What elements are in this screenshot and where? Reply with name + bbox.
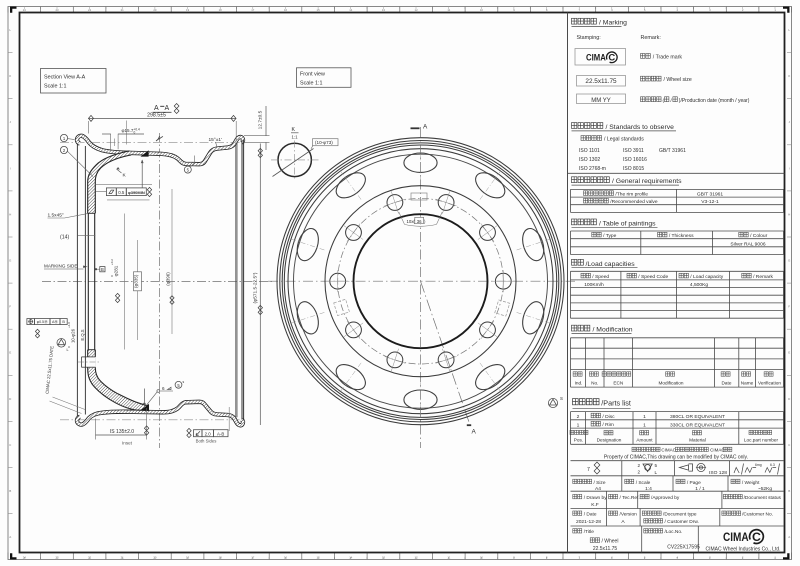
svg-text:ISO 128: ISO 128 (709, 470, 727, 476)
svg-text:0: 0 (134, 131, 136, 135)
svg-text:GB/T 31961: GB/T 31961 (697, 192, 724, 198)
svg-text:19: 19 (186, 8, 190, 12)
svg-text:V3-12-1: V3-12-1 (701, 199, 719, 205)
svg-text:380CL OR EQUIVALENT: 380CL OR EQUIVALENT (670, 414, 725, 420)
svg-text:/Load capacities: /Load capacities (586, 261, 636, 268)
svg-text:19: 19 (186, 555, 190, 559)
svg-text:K: K (292, 127, 296, 133)
svg-text:IS 135±2.0: IS 135±2.0 (110, 429, 134, 435)
svg-text:Inset: Inset (122, 441, 133, 446)
svg-text:Scale 1:1: Scale 1:1 (300, 80, 322, 86)
svg-text:10x(: 10x( (407, 219, 416, 224)
svg-text:/ Modification: / Modification (593, 327, 633, 334)
svg-text:13: 13 (382, 555, 386, 559)
svg-text:/Customer No.: /Customer No. (742, 512, 773, 518)
svg-text:CIMA: CIMA (723, 530, 749, 544)
svg-text:/ Page: / Page (687, 480, 701, 486)
svg-text:1: 1 (643, 422, 646, 428)
svg-text:Scale 1:1: Scale 1:1 (44, 84, 66, 90)
svg-text:ISO 3911: ISO 3911 (623, 148, 644, 154)
svg-text:22: 22 (88, 8, 92, 12)
svg-text:7: 7 (587, 467, 590, 473)
svg-text:GB/T 31961: GB/T 31961 (659, 148, 686, 154)
svg-text:/ Trade mark: / Trade mark (653, 55, 683, 61)
svg-text:A: A (154, 105, 159, 112)
svg-text:φ15.7: φ15.7 (122, 128, 134, 133)
svg-text:Date: Date (722, 381, 732, 386)
svg-text:Pos.: Pos. (574, 438, 583, 443)
svg-text:φ281: φ281 (114, 265, 119, 276)
svg-text:CIMAC,: CIMAC, (661, 447, 677, 452)
svg-text:B: B (788, 489, 790, 493)
svg-text:16: 16 (284, 8, 288, 12)
svg-text:1 / 1: 1 / 1 (695, 486, 705, 492)
svg-text:Material: Material (689, 438, 706, 443)
svg-text:17: 17 (251, 555, 255, 559)
svg-text:/ Legal standards: / Legal standards (604, 137, 644, 143)
svg-text:4,500Kg: 4,500Kg (690, 282, 709, 288)
svg-text:/Document type: /Document type (663, 512, 697, 518)
svg-text:S: S (560, 396, 563, 401)
svg-text:ISO 1302: ISO 1302 (579, 157, 600, 163)
svg-text:1: 1 (577, 422, 580, 428)
svg-text:15: 15 (317, 8, 321, 12)
svg-text:L: L (655, 470, 658, 475)
svg-text:1:1: 1:1 (292, 134, 299, 139)
svg-text:/ Disc: / Disc (602, 414, 615, 420)
svg-text:2: 2 (638, 463, 641, 468)
svg-text:23: 23 (55, 555, 59, 559)
svg-text:E: E (788, 351, 790, 355)
svg-text:12.7±0.5: 12.7±0.5 (258, 110, 264, 129)
svg-text:s: s (183, 380, 185, 384)
svg-text:/ Standards to observe: / Standards to observe (606, 124, 675, 131)
svg-text:ISO 16016: ISO 16016 (623, 157, 647, 163)
svg-text:10-φ26: 10-φ26 (71, 328, 76, 343)
svg-text:Amount: Amount (636, 438, 653, 443)
svg-text:15°±1': 15°±1' (209, 137, 223, 143)
svg-text:Section View A-A: Section View A-A (44, 75, 86, 81)
svg-text:14: 14 (349, 555, 353, 559)
svg-text:20: 20 (153, 8, 157, 12)
svg-text:K: K (9, 74, 11, 78)
svg-text:/Document status: /Document status (744, 495, 782, 501)
svg-text:A: A (472, 428, 477, 435)
svg-text:330CL OR EQUIVALENT: 330CL OR EQUIVALENT (670, 422, 725, 428)
svg-text:/ Wheel: / Wheel (602, 539, 619, 545)
svg-text:(φ396): (φ396) (165, 272, 170, 286)
svg-text:(10-φ73): (10-φ73) (315, 140, 333, 145)
svg-text:Front view: Front view (300, 71, 325, 77)
svg-text:/ Marking: / Marking (599, 20, 627, 27)
svg-text:CIMAC Wheel Industries Co., Lt: CIMAC Wheel Industries Co., Ltd. (705, 547, 780, 553)
svg-text:6.3: 6.3 (770, 463, 775, 467)
svg-text:K: K (788, 74, 790, 78)
svg-text:/ Remark: / Remark (753, 274, 773, 280)
svg-text:/ Load capacity: / Load capacity (690, 274, 723, 280)
svg-text:2: 2 (638, 470, 641, 475)
svg-text:16: 16 (284, 555, 288, 559)
svg-text:~52Kg: ~52Kg (758, 486, 773, 492)
svg-text:2.0: 2.0 (205, 431, 212, 436)
svg-text:+1.0: +1.0 (67, 322, 71, 328)
svg-text:φ0.5Ⓜ: φ0.5Ⓜ (37, 319, 48, 324)
svg-text:/ Weight: / Weight (742, 480, 760, 486)
svg-text:A4: A4 (595, 486, 601, 492)
svg-text:22.5x11.75: 22.5x11.75 (593, 546, 618, 552)
svg-text:)/Production date (month / yea: )/Production date (month / year) (679, 98, 750, 104)
svg-text:E.Q.S: E.Q.S (80, 329, 85, 340)
svg-text:(φ571.5-22.5"): (φ571.5-22.5") (253, 272, 259, 303)
svg-text:ISO 8015: ISO 8015 (623, 166, 644, 172)
svg-text:23: 23 (55, 8, 59, 12)
svg-text:/ Table of paintings: / Table of paintings (599, 220, 656, 227)
svg-text:Loc.part number: Loc.part number (744, 438, 779, 443)
svg-text:24: 24 (23, 555, 27, 559)
svg-text:L: L (67, 348, 69, 352)
svg-text:22.5x11.75: 22.5x11.75 (585, 78, 617, 85)
svg-text:/ Type: / Type (603, 233, 617, 239)
svg-text:ECN: ECN (613, 381, 623, 386)
svg-text:/ Scale: / Scale (636, 480, 651, 486)
svg-text:11: 11 (447, 555, 450, 559)
svg-text:6: 6 (162, 386, 165, 391)
svg-text:2021-12-28: 2021-12-28 (576, 519, 601, 525)
svg-text:21: 21 (121, 8, 125, 12)
svg-text:10: 10 (480, 555, 484, 559)
svg-text:+0.2: +0.2 (110, 259, 114, 265)
svg-text:/ Date: / Date (584, 512, 597, 518)
svg-text:0.5: 0.5 (118, 190, 125, 195)
svg-text:B: B (101, 267, 104, 272)
svg-text:MM YY: MM YY (591, 98, 611, 104)
svg-text:(φ335): (φ335) (134, 274, 139, 288)
svg-text:13: 13 (382, 8, 386, 12)
svg-text:Stamping:: Stamping: (577, 35, 601, 41)
svg-text:100Km/h: 100Km/h (584, 282, 604, 288)
svg-text:B: B (9, 489, 11, 493)
svg-text:/ Speed Code: / Speed Code (638, 274, 668, 280)
svg-text:5: 5 (655, 463, 658, 468)
svg-text:/ Wheel size: / Wheel size (664, 77, 692, 83)
svg-text:/ Drawn by: / Drawn by (584, 495, 608, 501)
svg-text:17: 17 (251, 8, 255, 12)
svg-text:/ Thickness: / Thickness (669, 233, 694, 239)
svg-text:A: A (788, 535, 790, 539)
svg-text:18: 18 (219, 555, 223, 559)
svg-text:24: 24 (23, 8, 27, 12)
svg-text:MARKING SIDE: MARKING SIDE (44, 264, 77, 269)
svg-text:Property of CIMAC,This drawing: Property of CIMAC,This drawing can be mo… (604, 454, 748, 460)
svg-text:22: 22 (88, 555, 92, 559)
svg-text:20: 20 (153, 555, 157, 559)
svg-text:11: 11 (447, 8, 450, 12)
svg-text:A: A (165, 105, 170, 112)
svg-text:E: E (9, 351, 11, 355)
svg-text:298.5±5: 298.5±5 (147, 113, 166, 119)
svg-text:/Recommended valve: /Recommended valve (610, 199, 658, 205)
svg-text:/ Tec.Ref.: / Tec.Ref. (620, 495, 640, 501)
svg-text:2: 2 (577, 414, 580, 420)
svg-text:H: H (9, 212, 11, 216)
svg-text:10: 10 (480, 8, 484, 12)
svg-text:15: 15 (317, 555, 321, 559)
svg-text:Verification: Verification (758, 381, 781, 386)
svg-text:ISO 1101: ISO 1101 (579, 148, 600, 154)
svg-text:14: 14 (349, 8, 353, 12)
svg-text:Modification: Modification (658, 381, 683, 386)
svg-text:A-B: A-B (217, 431, 224, 436)
svg-text:21: 21 (121, 555, 125, 559)
svg-text:/Version: /Version (620, 512, 638, 518)
svg-text:12: 12 (415, 555, 419, 559)
svg-text:A: A (9, 535, 11, 539)
svg-text:36: 36 (417, 219, 422, 224)
svg-text:ISO 2768-m: ISO 2768-m (579, 166, 606, 172)
svg-text:K.F: K.F (591, 502, 599, 508)
svg-text:/ Rim: / Rim (602, 422, 613, 428)
svg-text:1:4: 1:4 (645, 486, 652, 492)
svg-text:Silver RAL 9006: Silver RAL 9006 (730, 241, 765, 247)
svg-text:H: H (788, 212, 790, 216)
svg-text:/ General requirements: / General requirements (612, 178, 682, 185)
svg-text:Both Sides: Both Sides (196, 439, 217, 444)
svg-text:1.5x45°: 1.5x45° (48, 213, 64, 219)
svg-text:Name: Name (741, 381, 754, 386)
svg-text:F: F (9, 305, 11, 309)
svg-text:No.: No. (591, 381, 598, 386)
svg-text:/Approved by: /Approved by (651, 495, 680, 501)
svg-text:6mg: 6mg (755, 463, 762, 467)
svg-text:CV225X17595: CV225X17595 (667, 545, 700, 551)
svg-text:/Title: /Title (584, 529, 595, 535)
svg-text:φ390MIN: φ390MIN (128, 190, 145, 195)
svg-text:12: 12 (415, 8, 419, 12)
svg-text:/ Size: / Size (594, 480, 606, 486)
svg-text:Ind.: Ind. (575, 381, 583, 386)
svg-text:AⓂ: AⓂ (52, 319, 58, 324)
svg-text:/The rim profile: /The rim profile (615, 192, 648, 198)
svg-text:1: 1 (643, 414, 646, 420)
svg-text:18: 18 (219, 8, 223, 12)
svg-text:/Parts list: /Parts list (601, 399, 631, 408)
svg-text:Designation: Designation (597, 438, 622, 443)
svg-text:Remark:: Remark: (641, 35, 661, 41)
svg-text:/ Colour: / Colour (750, 233, 767, 239)
svg-text:/ Customer Drw.: / Customer Drw. (665, 519, 699, 525)
svg-text:/Loc.No.: /Loc.No. (665, 529, 683, 535)
svg-text:/ Speed: / Speed (592, 274, 609, 280)
svg-text:F: F (788, 305, 790, 309)
svg-text:CIMA: CIMA (586, 53, 606, 64)
svg-text:A: A (423, 124, 428, 131)
svg-text:(14): (14) (60, 235, 69, 241)
